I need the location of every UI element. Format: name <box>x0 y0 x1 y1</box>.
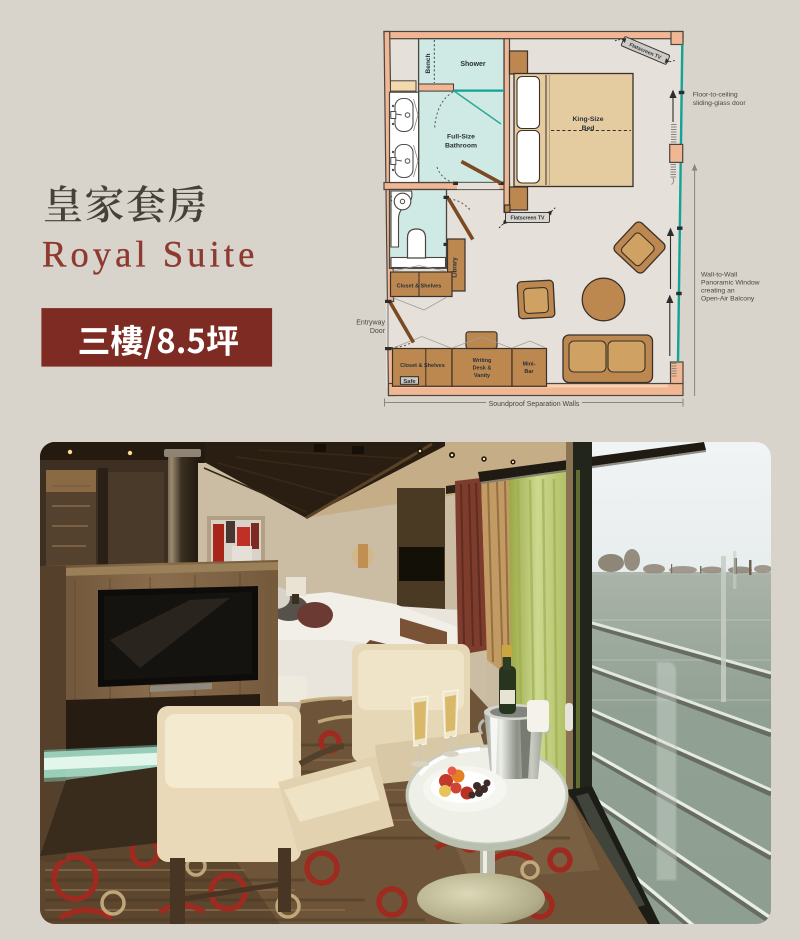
svg-text:Shower: Shower <box>460 61 486 68</box>
svg-text:Soundproof Separation Walls: Soundproof Separation Walls <box>489 401 580 408</box>
svg-text:Bed: Bed <box>582 125 595 132</box>
svg-text:Bathroom: Bathroom <box>445 143 477 150</box>
svg-text:Flatscreen TV: Flatscreen TV <box>510 216 545 222</box>
svg-text:Entryway: Entryway <box>356 320 385 327</box>
svg-text:Bench: Bench <box>425 54 432 74</box>
svg-text:Library: Library <box>453 257 459 278</box>
svg-text:Royal Suite: Royal Suite <box>42 234 258 275</box>
svg-text:Open-Air Balcony: Open-Air Balcony <box>701 296 755 303</box>
svg-text:King-Size: King-Size <box>573 116 604 123</box>
svg-text:Writing: Writing <box>473 358 492 364</box>
svg-text:Safe: Safe <box>403 379 416 385</box>
svg-text:Floor-to-ceiling: Floor-to-ceiling <box>693 92 738 99</box>
svg-text:Wall-to-Wall: Wall-to-Wall <box>701 272 738 279</box>
svg-text:Full-Size: Full-Size <box>447 134 475 141</box>
svg-text:Panoramic Window: Panoramic Window <box>701 280 760 287</box>
svg-text:sliding-glass door: sliding-glass door <box>693 100 747 107</box>
svg-text:Closet & Shelves: Closet & Shelves <box>400 363 445 369</box>
svg-text:Bar: Bar <box>524 369 534 375</box>
svg-text:creating an: creating an <box>701 288 735 295</box>
svg-text:Desk &: Desk & <box>473 366 492 372</box>
svg-text:Closet & Shelves: Closet & Shelves <box>397 284 442 290</box>
svg-text:Door: Door <box>370 328 386 335</box>
svg-text:Vanity: Vanity <box>474 373 491 379</box>
svg-text:Mini-: Mini- <box>523 362 536 368</box>
